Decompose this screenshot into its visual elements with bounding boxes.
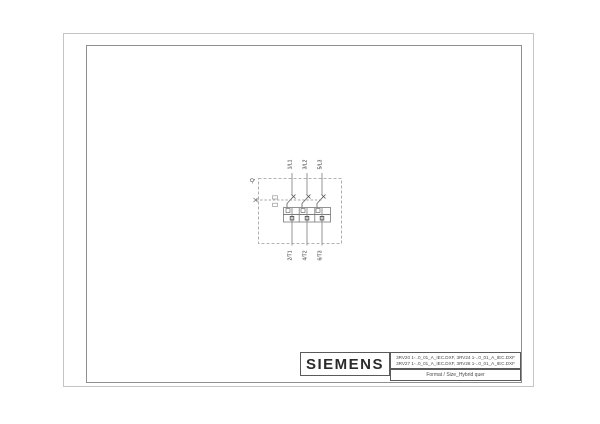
contact-blade bbox=[287, 197, 293, 208]
pole-3 bbox=[316, 173, 326, 246]
drawing-sheet: { "drawing": { "designation": "-Q", "top… bbox=[0, 0, 600, 424]
pole-1 bbox=[286, 173, 296, 246]
thermal-release-symbol bbox=[286, 209, 290, 213]
terminal-label-1L1: 1/L1 bbox=[288, 153, 295, 177]
pole-2 bbox=[301, 173, 311, 246]
terminal-label-6T3: 6/T3 bbox=[318, 244, 325, 268]
title-block-brand-cell: SIEMENS bbox=[300, 352, 390, 376]
terminal-label-3L2: 3/L2 bbox=[303, 153, 310, 177]
contact-blade bbox=[317, 197, 323, 208]
brand-logo-text: SIEMENS bbox=[306, 356, 384, 373]
breaker-schematic bbox=[240, 148, 360, 273]
title-block-filenames-cell: 3RV20 1-..0_01_A_IEC.DXF, 3RV24 1-..0_01… bbox=[390, 352, 521, 369]
breaker-schematic-drawing bbox=[240, 148, 360, 273]
format-size-label: Format / Size_Hybrid quer bbox=[426, 372, 484, 378]
terminal-label-5L3: 5/L3 bbox=[318, 153, 325, 177]
thermal-release-symbol bbox=[301, 209, 305, 213]
title-block-format-cell: Format / Size_Hybrid quer bbox=[390, 369, 521, 381]
thermal-release-symbol bbox=[316, 209, 320, 213]
terminal-label-2T1: 2/T1 bbox=[288, 244, 295, 268]
dxf-filenames-line2: 3RV27 1-..0_01_A_IEC.DXF, 3RV28 1-..0_01… bbox=[396, 361, 515, 367]
trip-mechanism-symbols bbox=[273, 196, 278, 207]
device-designation-label: -Q bbox=[250, 174, 256, 188]
contact-blade bbox=[302, 197, 308, 208]
terminal-label-4T2: 4/T2 bbox=[303, 244, 310, 268]
enclosure-dashed-box bbox=[259, 179, 342, 244]
